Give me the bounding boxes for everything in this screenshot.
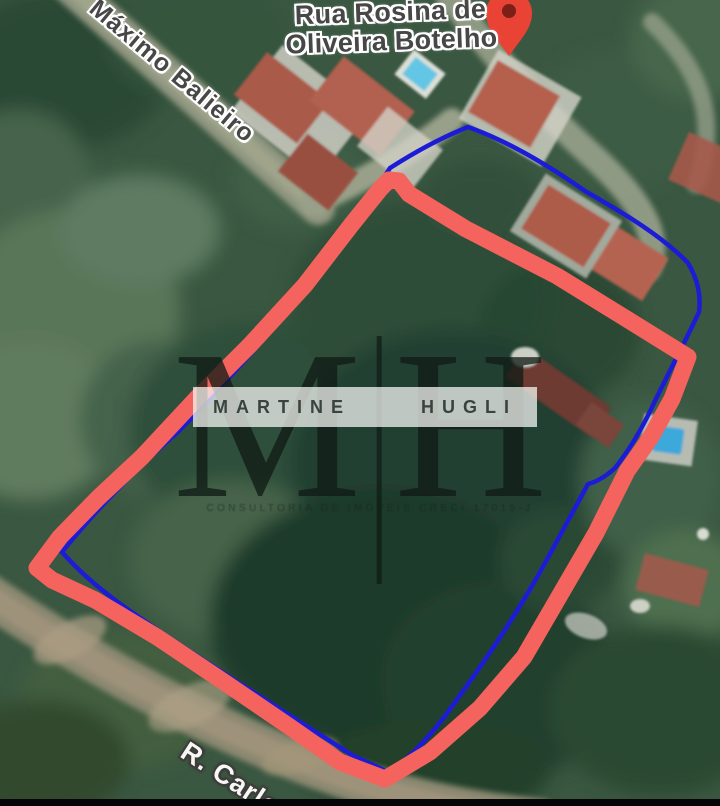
satellite-canvas: [0, 0, 720, 806]
satellite-map: Rua Rosina de Oliveira Botelho Máximo Ba…: [0, 0, 720, 806]
letterbox-bar: [0, 799, 720, 806]
